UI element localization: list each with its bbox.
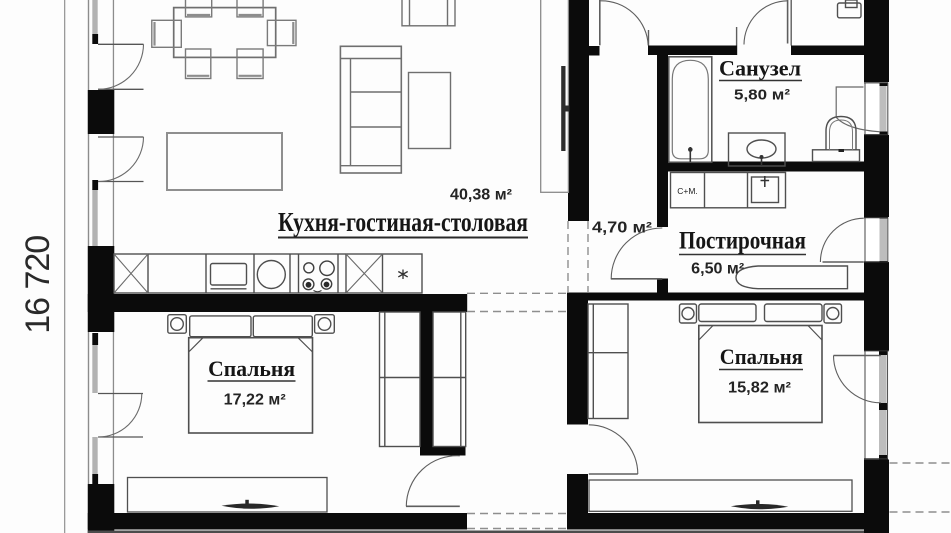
svg-text:15,82 м²: 15,82 м² bbox=[728, 380, 791, 397]
svg-text:Спальня: Спальня bbox=[720, 344, 803, 369]
svg-text:Кухня-гостиная-столовая: Кухня-гостиная-столовая bbox=[278, 207, 528, 237]
svg-text:С+М.: С+М. bbox=[677, 186, 698, 196]
svg-text:4,70 м²: 4,70 м² bbox=[592, 220, 652, 237]
svg-text:40,38 м²: 40,38 м² bbox=[450, 187, 512, 204]
svg-text:Спальня: Спальня bbox=[208, 356, 295, 381]
svg-text:17,22 м²: 17,22 м² bbox=[224, 392, 286, 409]
svg-text:16 720: 16 720 bbox=[19, 236, 57, 334]
svg-text:5,80 м²: 5,80 м² bbox=[734, 87, 790, 104]
svg-text:Санузел: Санузел bbox=[719, 56, 801, 81]
svg-text:Постирочная: Постирочная bbox=[679, 228, 806, 255]
svg-text:6,50 м²: 6,50 м² bbox=[691, 261, 744, 278]
